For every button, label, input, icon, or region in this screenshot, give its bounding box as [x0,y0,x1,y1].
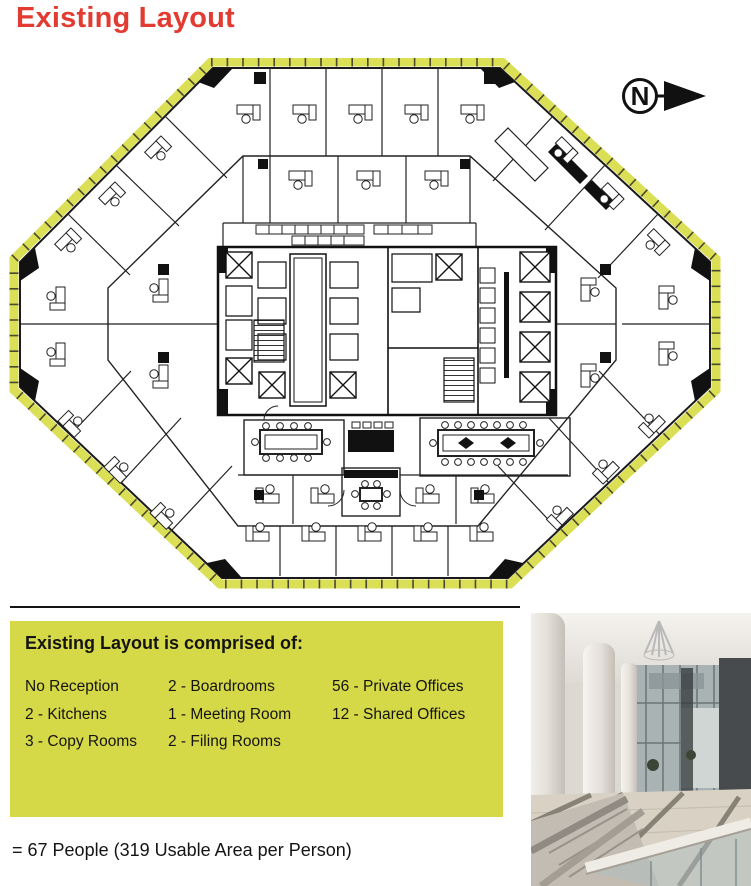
summary-item: 2 - Boardrooms [168,673,291,701]
summary-column-3: 56 - Private Offices 12 - Shared Offices [332,673,465,728]
stair-icon [444,358,474,402]
summary-item: 2 - Kitchens [25,701,137,729]
summary-item: 2 - Filing Rooms [168,728,291,756]
floor-plan: N [8,58,743,593]
summary-box: Existing Layout is comprised of: No Rece… [10,621,503,817]
summary-item: No Reception [25,673,137,701]
summary-item: 56 - Private Offices [332,673,465,701]
summary-item: 12 - Shared Offices [332,701,465,729]
summary-column-1: No Reception 2 - Kitchens 3 - Copy Rooms [25,673,137,756]
summary-item: 3 - Copy Rooms [25,728,137,756]
divider-line [10,606,520,608]
north-label: N [631,81,650,111]
stair-icon [254,320,284,362]
summary-heading: Existing Layout is comprised of: [25,633,303,654]
summary-item: 1 - Meeting Room [168,701,291,729]
people-summary: = 67 People (319 Usable Area per Person) [12,840,352,861]
summary-column-2: 2 - Boardrooms 1 - Meeting Room 2 - Fili… [168,673,291,756]
lobby-photo [531,613,751,886]
page-title: Existing Layout [16,2,235,35]
north-arrow-icon: N [624,80,707,113]
